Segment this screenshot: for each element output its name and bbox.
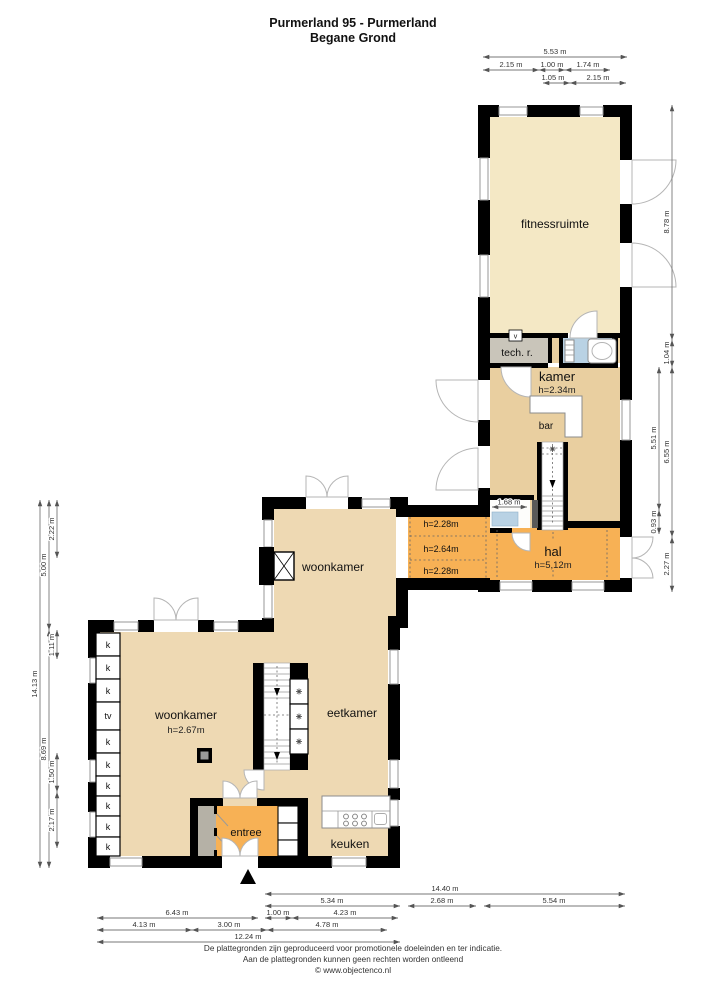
floorplan-drawing: Purmerland 95 - Purmerland Begane Grond bbox=[0, 0, 707, 1000]
dim-bottom-268: 2.68 m bbox=[431, 896, 454, 905]
dim-right-655: 6.55 m bbox=[662, 441, 671, 464]
dim-bottom-478: 4.78 m bbox=[316, 920, 339, 929]
dim-right-104: 1.04 m bbox=[662, 342, 671, 365]
dim-left-217: 2.17 m bbox=[47, 809, 56, 832]
fitness-door-right-2 bbox=[632, 243, 676, 287]
label-hal-height: h=5,12m bbox=[534, 560, 571, 571]
label-fitnessruimte: fitnessruimte bbox=[521, 217, 589, 231]
page-title-line2: Begane Grond bbox=[310, 31, 396, 45]
hal-door-right-2 bbox=[632, 558, 653, 578]
entree-closets bbox=[278, 806, 298, 856]
upper-staircase bbox=[542, 442, 563, 530]
kitchen-counter bbox=[322, 796, 390, 828]
label-eetkamer: eetkamer bbox=[327, 706, 377, 720]
closet-label: k bbox=[106, 640, 111, 650]
label-kamer: kamer bbox=[539, 369, 576, 384]
footer-line2: Aan de plattegronden kunnen geen rechten… bbox=[243, 955, 464, 964]
vestibule-floor bbox=[198, 806, 216, 856]
dim-top-215b: 2.15 m bbox=[587, 73, 610, 82]
label-kamer-height: h=2.34m bbox=[538, 385, 575, 396]
vent-label: v bbox=[514, 334, 518, 341]
closet-label: k bbox=[106, 781, 111, 791]
dim-left-150: 1.50 m bbox=[47, 761, 56, 784]
sink bbox=[375, 814, 387, 825]
radiator bbox=[565, 340, 574, 362]
closet-label: k bbox=[106, 686, 111, 696]
dim-bottom-534: 5.34 m bbox=[321, 896, 344, 905]
dim-top-105: 1.05 m bbox=[542, 73, 565, 82]
dimensions-bottom: 14.40 m 5.34 m 2.68 m 5.54 m 6.43 m 1.00… bbox=[97, 884, 625, 942]
dim-left-111: 1.11 m bbox=[47, 634, 56, 656]
duct bbox=[532, 500, 538, 528]
label-woonkamer: woonkamer bbox=[154, 708, 217, 722]
fireplace-wall bbox=[259, 547, 274, 585]
dim-toilet: 1.68 m bbox=[498, 498, 521, 507]
dim-top-553: 5.53 m bbox=[544, 47, 567, 56]
label-bar: bar bbox=[539, 421, 554, 432]
dim-right-227: 2.27 m bbox=[662, 553, 671, 576]
dim-bottom-413: 4.13 m bbox=[133, 920, 156, 929]
dim-bottom-1440: 14.40 m bbox=[431, 884, 458, 893]
corridor-height-bottom: h=2.28m bbox=[423, 566, 458, 576]
tv-label: tv bbox=[104, 711, 112, 721]
footer-line3: © www.objectenco.nl bbox=[315, 966, 391, 975]
kamer-door-left-1 bbox=[436, 380, 478, 422]
label-hal: hal bbox=[544, 544, 561, 559]
label-entree: entree bbox=[230, 827, 261, 839]
dim-right-878: 8.78 m bbox=[662, 211, 671, 234]
footer-line1: De plattegronden zijn geproduceerd voor … bbox=[204, 944, 502, 953]
dim-bottom-643: 6.43 m bbox=[166, 908, 189, 917]
page-title-line1: Purmerland 95 - Purmerland bbox=[269, 16, 436, 30]
closet-label: k bbox=[106, 737, 111, 747]
dim-top-174: 1.74 m bbox=[577, 60, 600, 69]
dim-bottom-423: 4.23 m bbox=[334, 908, 357, 917]
dim-left-1413: 14.13 m bbox=[30, 670, 39, 697]
label-woonkamer-boven: woonkamer bbox=[301, 560, 364, 574]
corridor-height-top: h=2.28m bbox=[423, 519, 458, 529]
dim-left-500: 5.00 m bbox=[39, 554, 48, 577]
label-tech-r: tech. r. bbox=[501, 347, 533, 359]
closet-label: k bbox=[106, 842, 111, 852]
dimensions-top: 5.53 m 2.15 m 1.00 m 1.74 m 1.05 m 2.15 … bbox=[483, 47, 627, 83]
closet-label: k bbox=[106, 822, 111, 832]
dim-top-215a: 2.15 m bbox=[500, 60, 523, 69]
dim-bottom-100: 1.00 m bbox=[267, 908, 290, 917]
dim-right-093: 0.93 m bbox=[649, 511, 658, 534]
closet-label: k bbox=[106, 663, 111, 673]
kamer-door-left-2 bbox=[436, 448, 478, 490]
dim-right-551: 5.51 m bbox=[649, 427, 658, 450]
label-keuken: keuken bbox=[331, 837, 370, 851]
dim-left-222: 2.22 m bbox=[47, 518, 56, 541]
dimensions-left: 14.13 m 5.00 m 8.69 m 2.22 m 1.11 m 1.50… bbox=[30, 500, 57, 868]
hal-door-right-1 bbox=[632, 537, 653, 558]
closet-label: k bbox=[106, 801, 111, 811]
closet-row: k k k tv k k k k k k bbox=[96, 633, 120, 856]
dim-bottom-1224: 12.24 m bbox=[234, 932, 261, 941]
dim-top-100: 1.00 m bbox=[541, 60, 564, 69]
entrance-arrow-icon bbox=[240, 869, 256, 884]
dim-left-869: 8.69 m bbox=[39, 738, 48, 761]
corridor-height-mid: h=2.64m bbox=[423, 544, 458, 554]
floorplan-page: Purmerland 95 - Purmerland Begane Grond bbox=[0, 0, 707, 1000]
dim-bottom-300: 3.00 m bbox=[218, 920, 241, 929]
fitness-door-right-1 bbox=[632, 160, 676, 204]
closet-label: k bbox=[106, 760, 111, 770]
label-woonkamer-height: h=2.67m bbox=[167, 725, 204, 736]
dim-bottom-554: 5.54 m bbox=[543, 896, 566, 905]
